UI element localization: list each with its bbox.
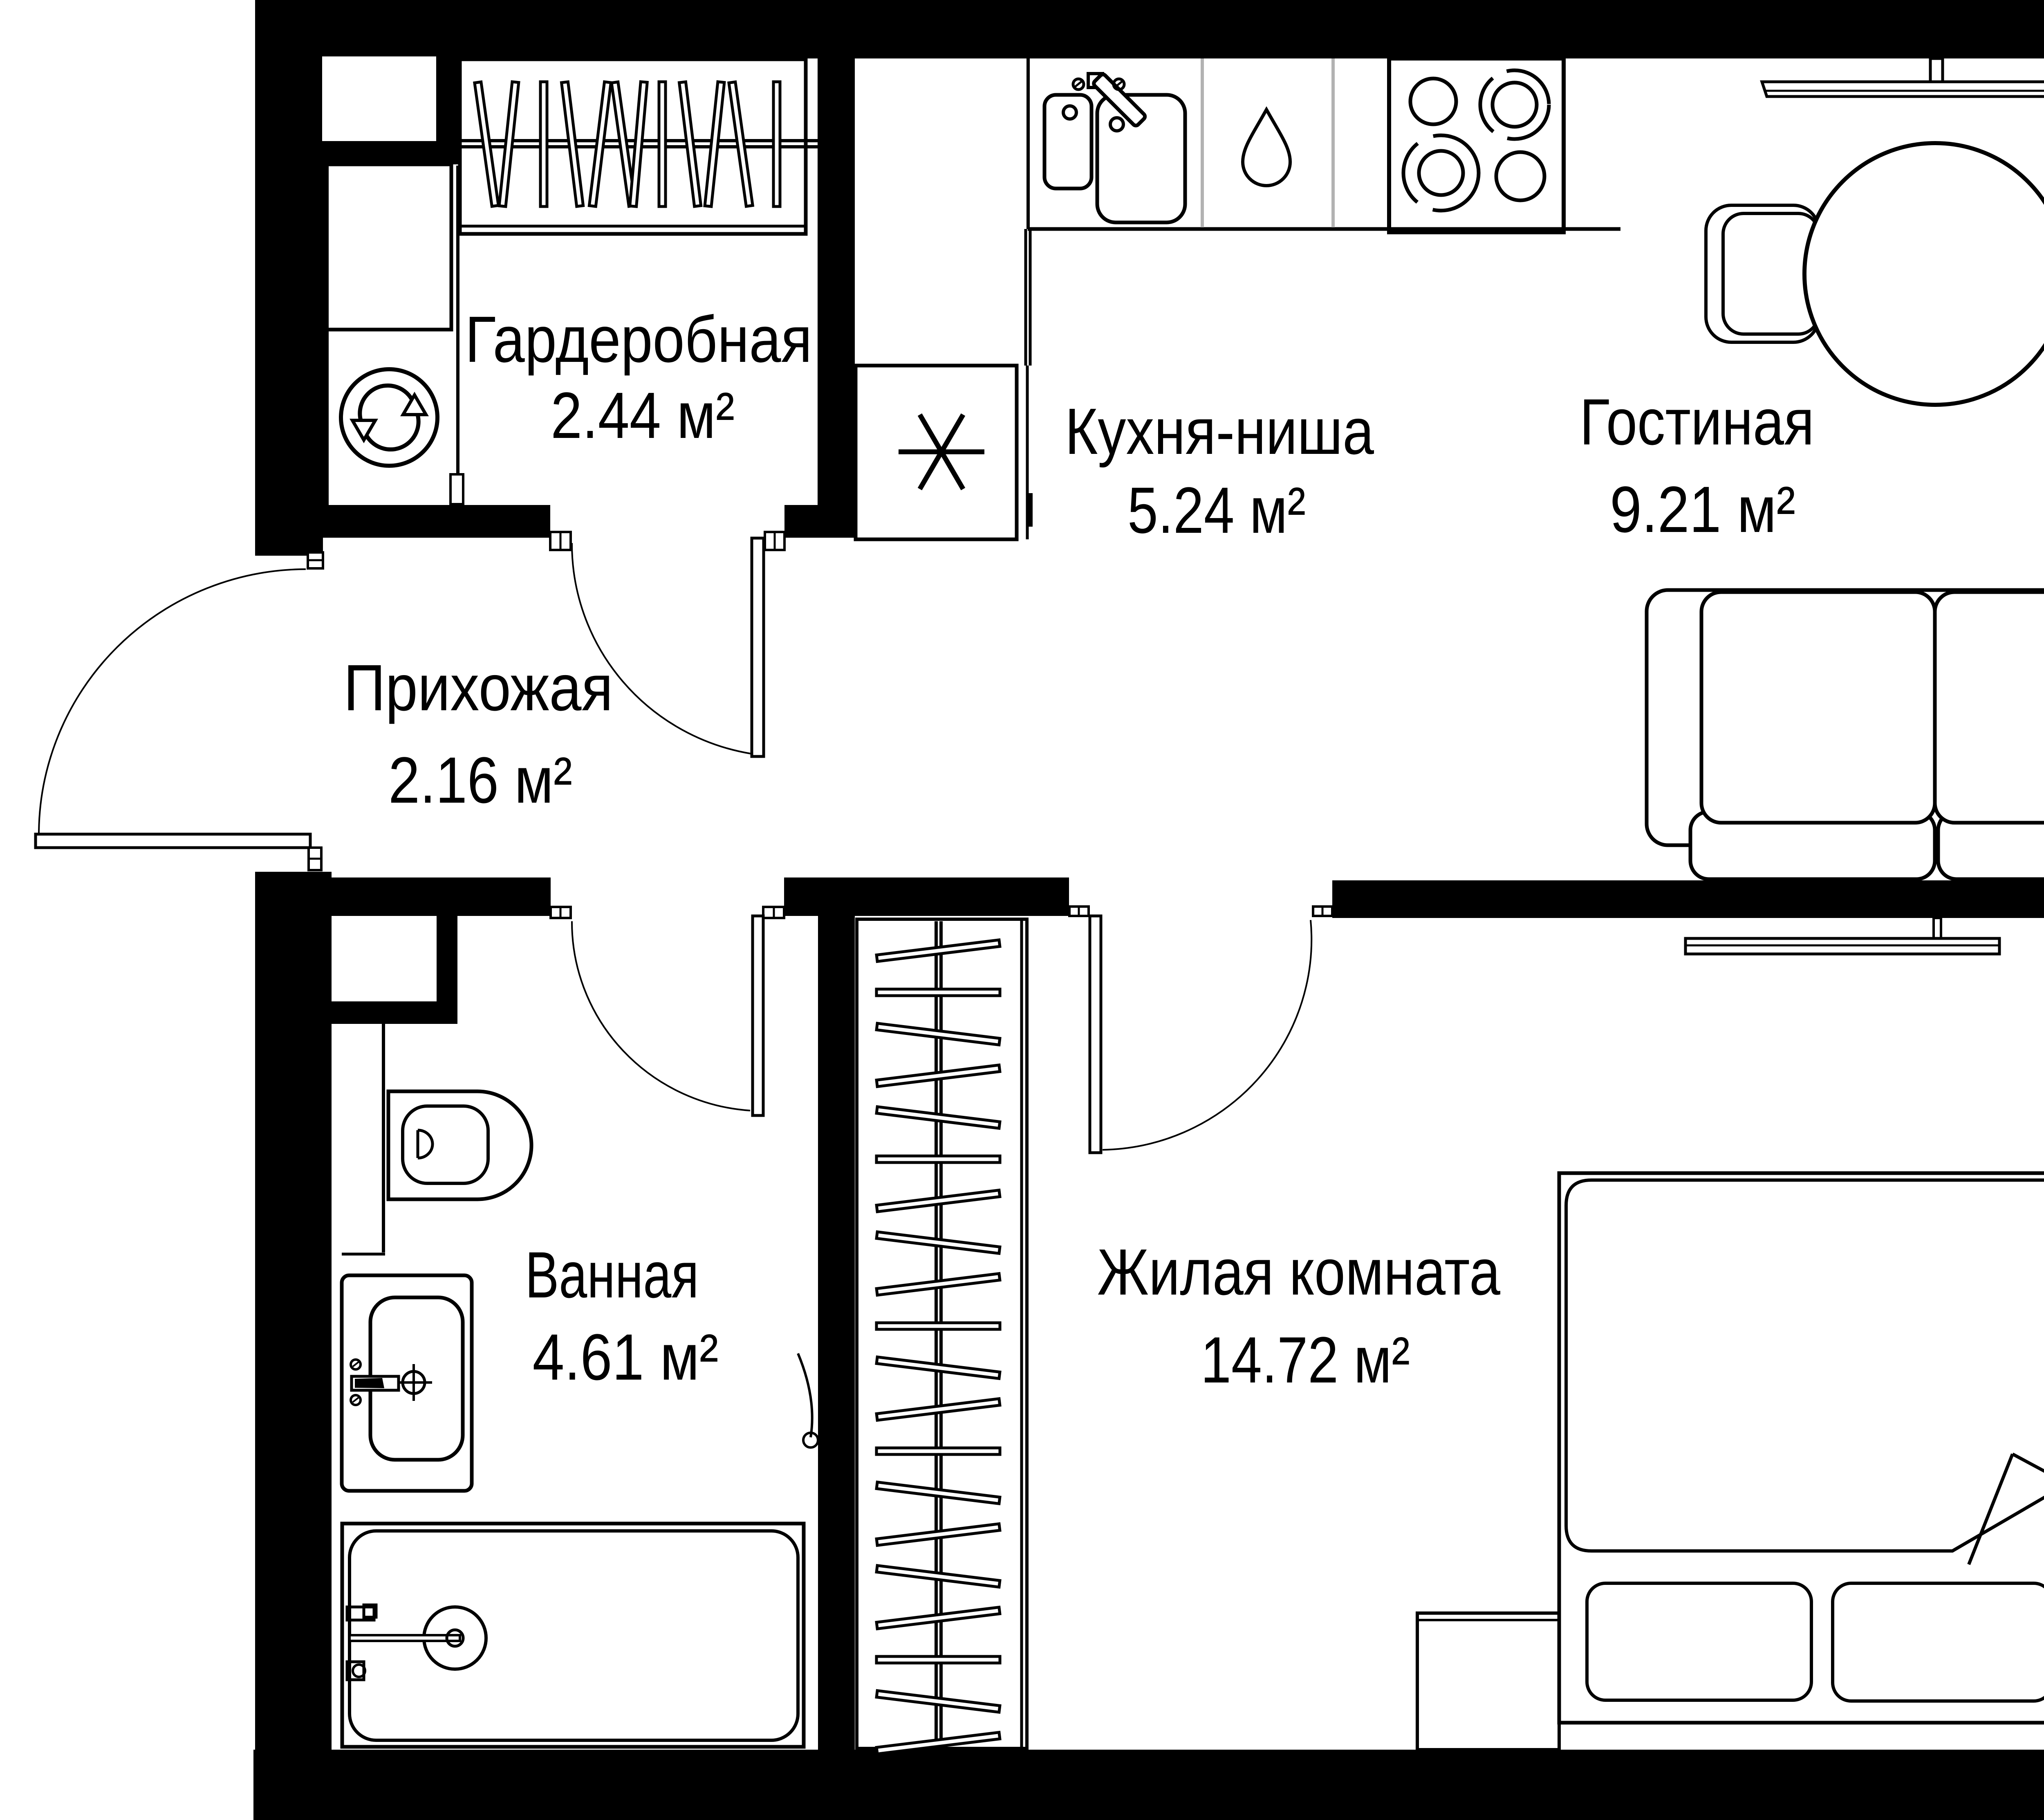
svg-text:14.72 м²: 14.72 м² xyxy=(1201,1323,1410,1396)
svg-text:9.21 м²: 9.21 м² xyxy=(1610,473,1795,546)
svg-text:Ванная: Ванная xyxy=(525,1238,699,1311)
svg-text:Гостиная: Гостиная xyxy=(1580,385,1814,458)
svg-text:5.24 м²: 5.24 м² xyxy=(1127,474,1306,547)
svg-text:Жилая комната: Жилая комната xyxy=(1097,1235,1500,1308)
svg-text:2.44 м²: 2.44 м² xyxy=(551,379,735,452)
svg-text:Кухня-ниша: Кухня-ниша xyxy=(1065,395,1374,468)
svg-text:4.61 м²: 4.61 м² xyxy=(533,1320,719,1394)
svg-text:Гардеробная: Гардеробная xyxy=(465,303,812,376)
svg-text:Прихожая: Прихожая xyxy=(344,651,613,724)
svg-text:2.16 м²: 2.16 м² xyxy=(388,743,572,817)
